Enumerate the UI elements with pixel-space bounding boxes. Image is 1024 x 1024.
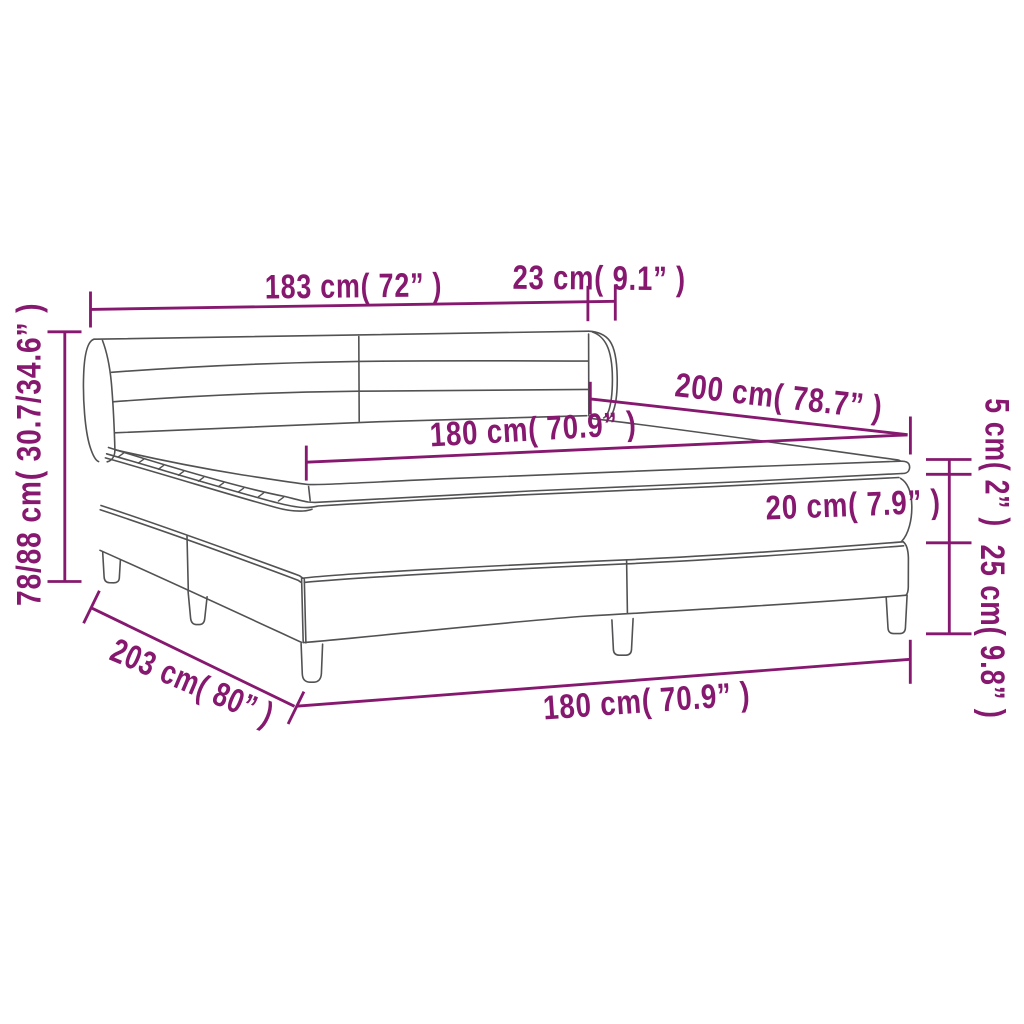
svg-text:183 cm( 72” ): 183 cm( 72” ) bbox=[265, 266, 443, 306]
svg-text:25 cm( 9.8” ): 25 cm( 9.8” ) bbox=[973, 545, 1011, 719]
svg-text:23 cm( 9.1” ): 23 cm( 9.1” ) bbox=[512, 258, 686, 298]
svg-text:78/88 cm( 30.7/34.6” ): 78/88 cm( 30.7/34.6” ) bbox=[10, 303, 48, 606]
svg-text:20 cm( 7.9” ): 20 cm( 7.9” ) bbox=[765, 482, 942, 527]
svg-text:5 cm( 2” ): 5 cm( 2” ) bbox=[978, 398, 1016, 527]
